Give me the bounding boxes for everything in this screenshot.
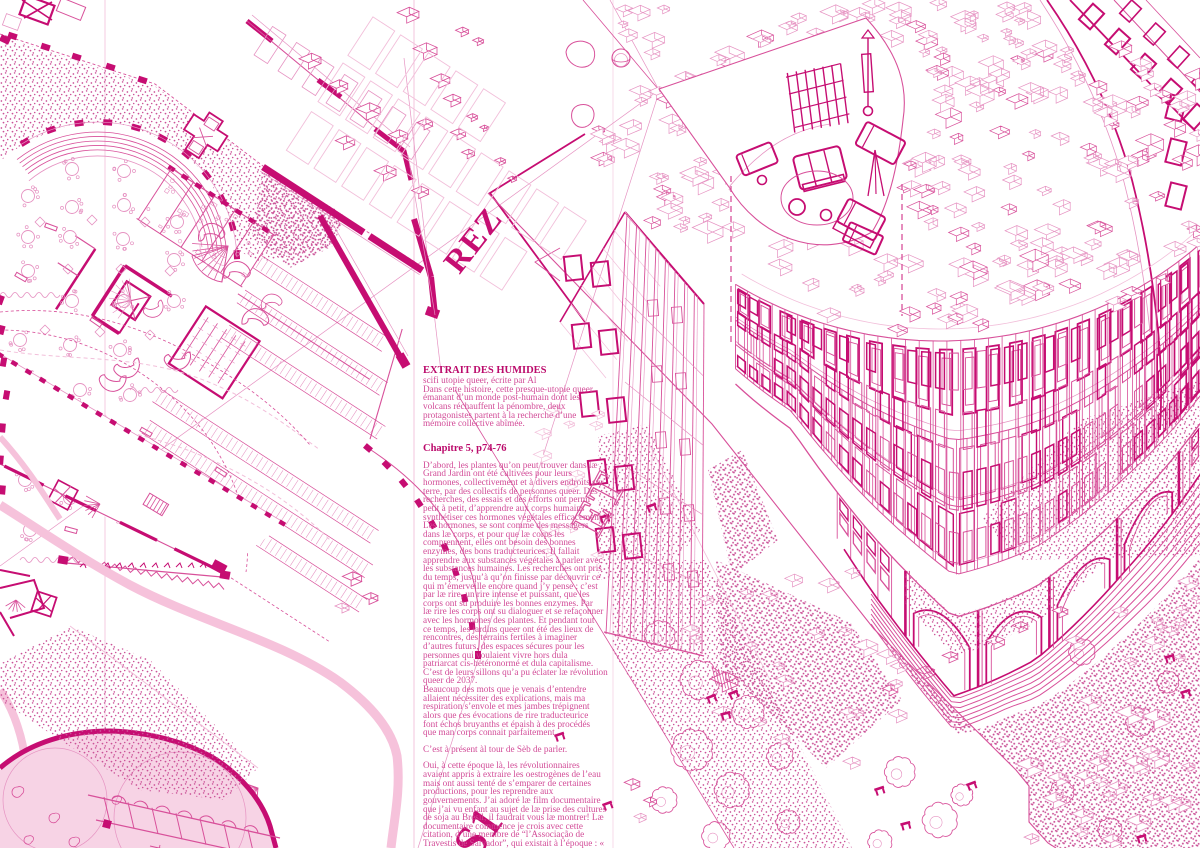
svg-text:REZ: REZ [437, 201, 510, 280]
